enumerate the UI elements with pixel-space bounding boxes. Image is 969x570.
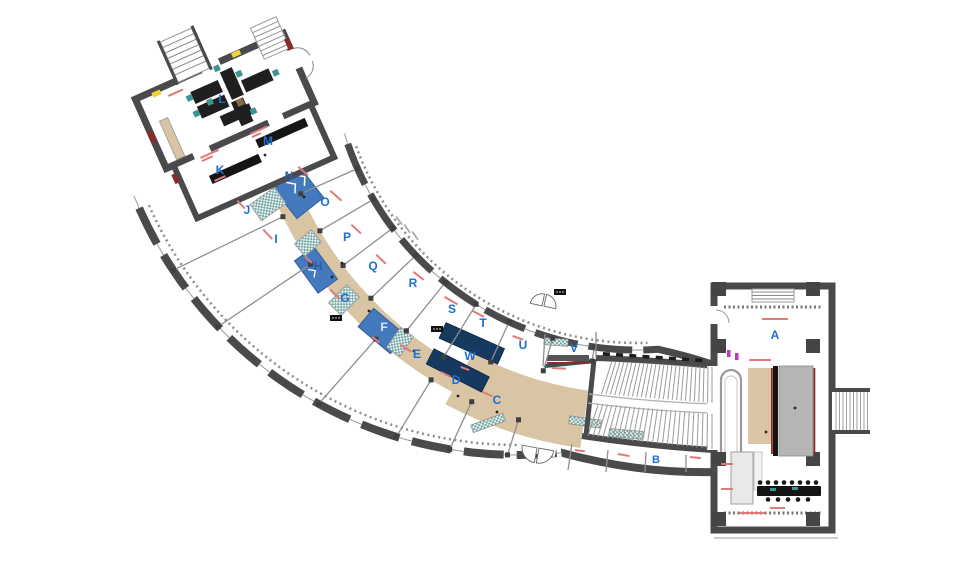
door-jamb <box>317 228 322 233</box>
floor-plan-canvas: ABCDEFGHIJKLMNOPQRSTUVW <box>0 0 969 570</box>
bench-seat <box>603 352 610 356</box>
east-hall-door-gap <box>710 306 719 324</box>
door-number-glyph <box>562 291 563 292</box>
dimension-mark <box>404 224 411 233</box>
room-label-S: S <box>448 302 456 316</box>
bench-seat <box>629 354 636 358</box>
room-label-C: C <box>493 393 502 407</box>
floor-plan-svg: ABCDEFGHIJKLMNOPQRSTUVW <box>0 0 969 570</box>
door-jamb <box>488 360 493 365</box>
fitting-dot <box>496 411 499 414</box>
fitting-dot <box>368 310 371 313</box>
door-jamb <box>590 359 595 364</box>
hall-right-stair <box>832 388 870 434</box>
east-hall-entry-gap <box>707 366 720 450</box>
chair <box>814 480 819 485</box>
chair <box>766 480 771 485</box>
door-number-glyph <box>338 317 339 318</box>
door-number-glyph <box>335 317 336 318</box>
room-label-V: V <box>570 341 578 355</box>
room-label-P: P <box>343 230 351 244</box>
bench-seat <box>682 357 689 361</box>
door-number-glyph <box>556 291 557 292</box>
chair <box>790 480 795 485</box>
door-jamb <box>550 336 555 341</box>
door-jamb <box>371 197 376 202</box>
door-jamb <box>404 328 409 333</box>
door-number-glyph <box>436 328 437 329</box>
door-number-glyph <box>332 317 333 318</box>
red-annotation <box>739 512 765 514</box>
room-label-D: D <box>452 373 461 387</box>
door-jamb <box>368 296 373 301</box>
service-stair-block <box>731 452 753 504</box>
door-jamb <box>394 434 399 439</box>
room-label-N: N <box>285 169 294 183</box>
door-jamb <box>171 268 176 273</box>
stage-accent-left <box>771 368 773 454</box>
chair <box>786 497 791 502</box>
magenta-door-mark-2 <box>735 353 739 360</box>
fitting-dot <box>341 262 344 265</box>
room-label-B: B <box>652 454 660 466</box>
chair <box>758 480 763 485</box>
table-item-2 <box>792 487 798 490</box>
chair <box>766 497 771 502</box>
door-jamb <box>355 166 360 171</box>
bench-seat <box>695 358 702 362</box>
door-jamb <box>441 355 446 360</box>
door-jamb <box>507 320 512 325</box>
stage-accent-right <box>814 368 816 454</box>
door-jamb <box>429 377 434 382</box>
room-label-W: W <box>464 349 476 363</box>
room-label-E: E <box>413 347 421 361</box>
hall-ramp <box>748 368 772 444</box>
chair <box>806 480 811 485</box>
bench-seat <box>656 356 663 360</box>
door-jamb <box>516 417 521 422</box>
door-jamb <box>447 447 452 452</box>
chair <box>776 497 781 502</box>
door-jamb <box>541 368 546 373</box>
fitting-dot <box>226 116 229 119</box>
door-jamb <box>298 191 303 196</box>
fitting-dot <box>264 154 267 157</box>
bench-seat <box>616 353 623 357</box>
hall-top-stair <box>752 289 794 302</box>
fitting-dot <box>794 407 797 410</box>
stage-platform <box>779 366 813 456</box>
magenta-door-mark-1 <box>727 350 731 357</box>
door-jamb <box>216 324 221 329</box>
door-number-glyph <box>439 328 440 329</box>
red-annotation <box>749 359 771 361</box>
room-label-T: T <box>479 316 487 330</box>
red-annotation <box>721 488 733 490</box>
room-label-R: R <box>409 276 418 290</box>
fixture-strip-v <box>544 338 568 347</box>
fitting-dot <box>765 431 768 434</box>
room-label-M: M <box>263 134 273 148</box>
room-label-I: I <box>274 232 277 246</box>
door-jamb <box>469 399 474 404</box>
conference-table <box>757 486 821 496</box>
room-label-G: G <box>340 291 349 305</box>
red-annotation <box>762 318 788 320</box>
room-v-counter <box>547 355 589 361</box>
chair <box>798 480 803 485</box>
bench-seat <box>669 357 676 361</box>
room-label-F: F <box>380 320 387 334</box>
room-label-H: H <box>314 259 323 273</box>
chair <box>782 480 787 485</box>
fitting-dot <box>457 395 460 398</box>
door-jamb <box>316 401 321 406</box>
dimension-mark <box>412 231 419 240</box>
red-annotation <box>721 463 733 465</box>
room-v-counter-edge <box>547 362 589 364</box>
room-label-O: O <box>320 195 329 209</box>
room-label-Q: Q <box>368 259 377 273</box>
red-annotation <box>770 507 785 509</box>
room-label-A: A <box>771 328 780 342</box>
door-jamb <box>280 214 285 219</box>
fitting-dot <box>303 196 306 199</box>
door-number-glyph <box>433 328 434 329</box>
room-label-L: L <box>218 92 225 106</box>
stage-edge-bar <box>773 366 778 456</box>
door-jamb <box>443 280 448 285</box>
door-jamb <box>474 302 479 307</box>
door-number-glyph <box>559 291 560 292</box>
chair <box>774 480 779 485</box>
room-label-K: K <box>216 163 225 177</box>
bench-seat <box>642 355 649 359</box>
room-label-U: U <box>519 338 528 352</box>
room-label-J: J <box>244 203 251 217</box>
fitting-dot <box>331 276 334 279</box>
door-jamb <box>390 226 395 231</box>
chair <box>796 497 801 502</box>
door-jamb <box>505 452 510 457</box>
chair <box>806 497 811 502</box>
door-jamb <box>413 253 418 258</box>
table-item-1 <box>770 488 776 491</box>
